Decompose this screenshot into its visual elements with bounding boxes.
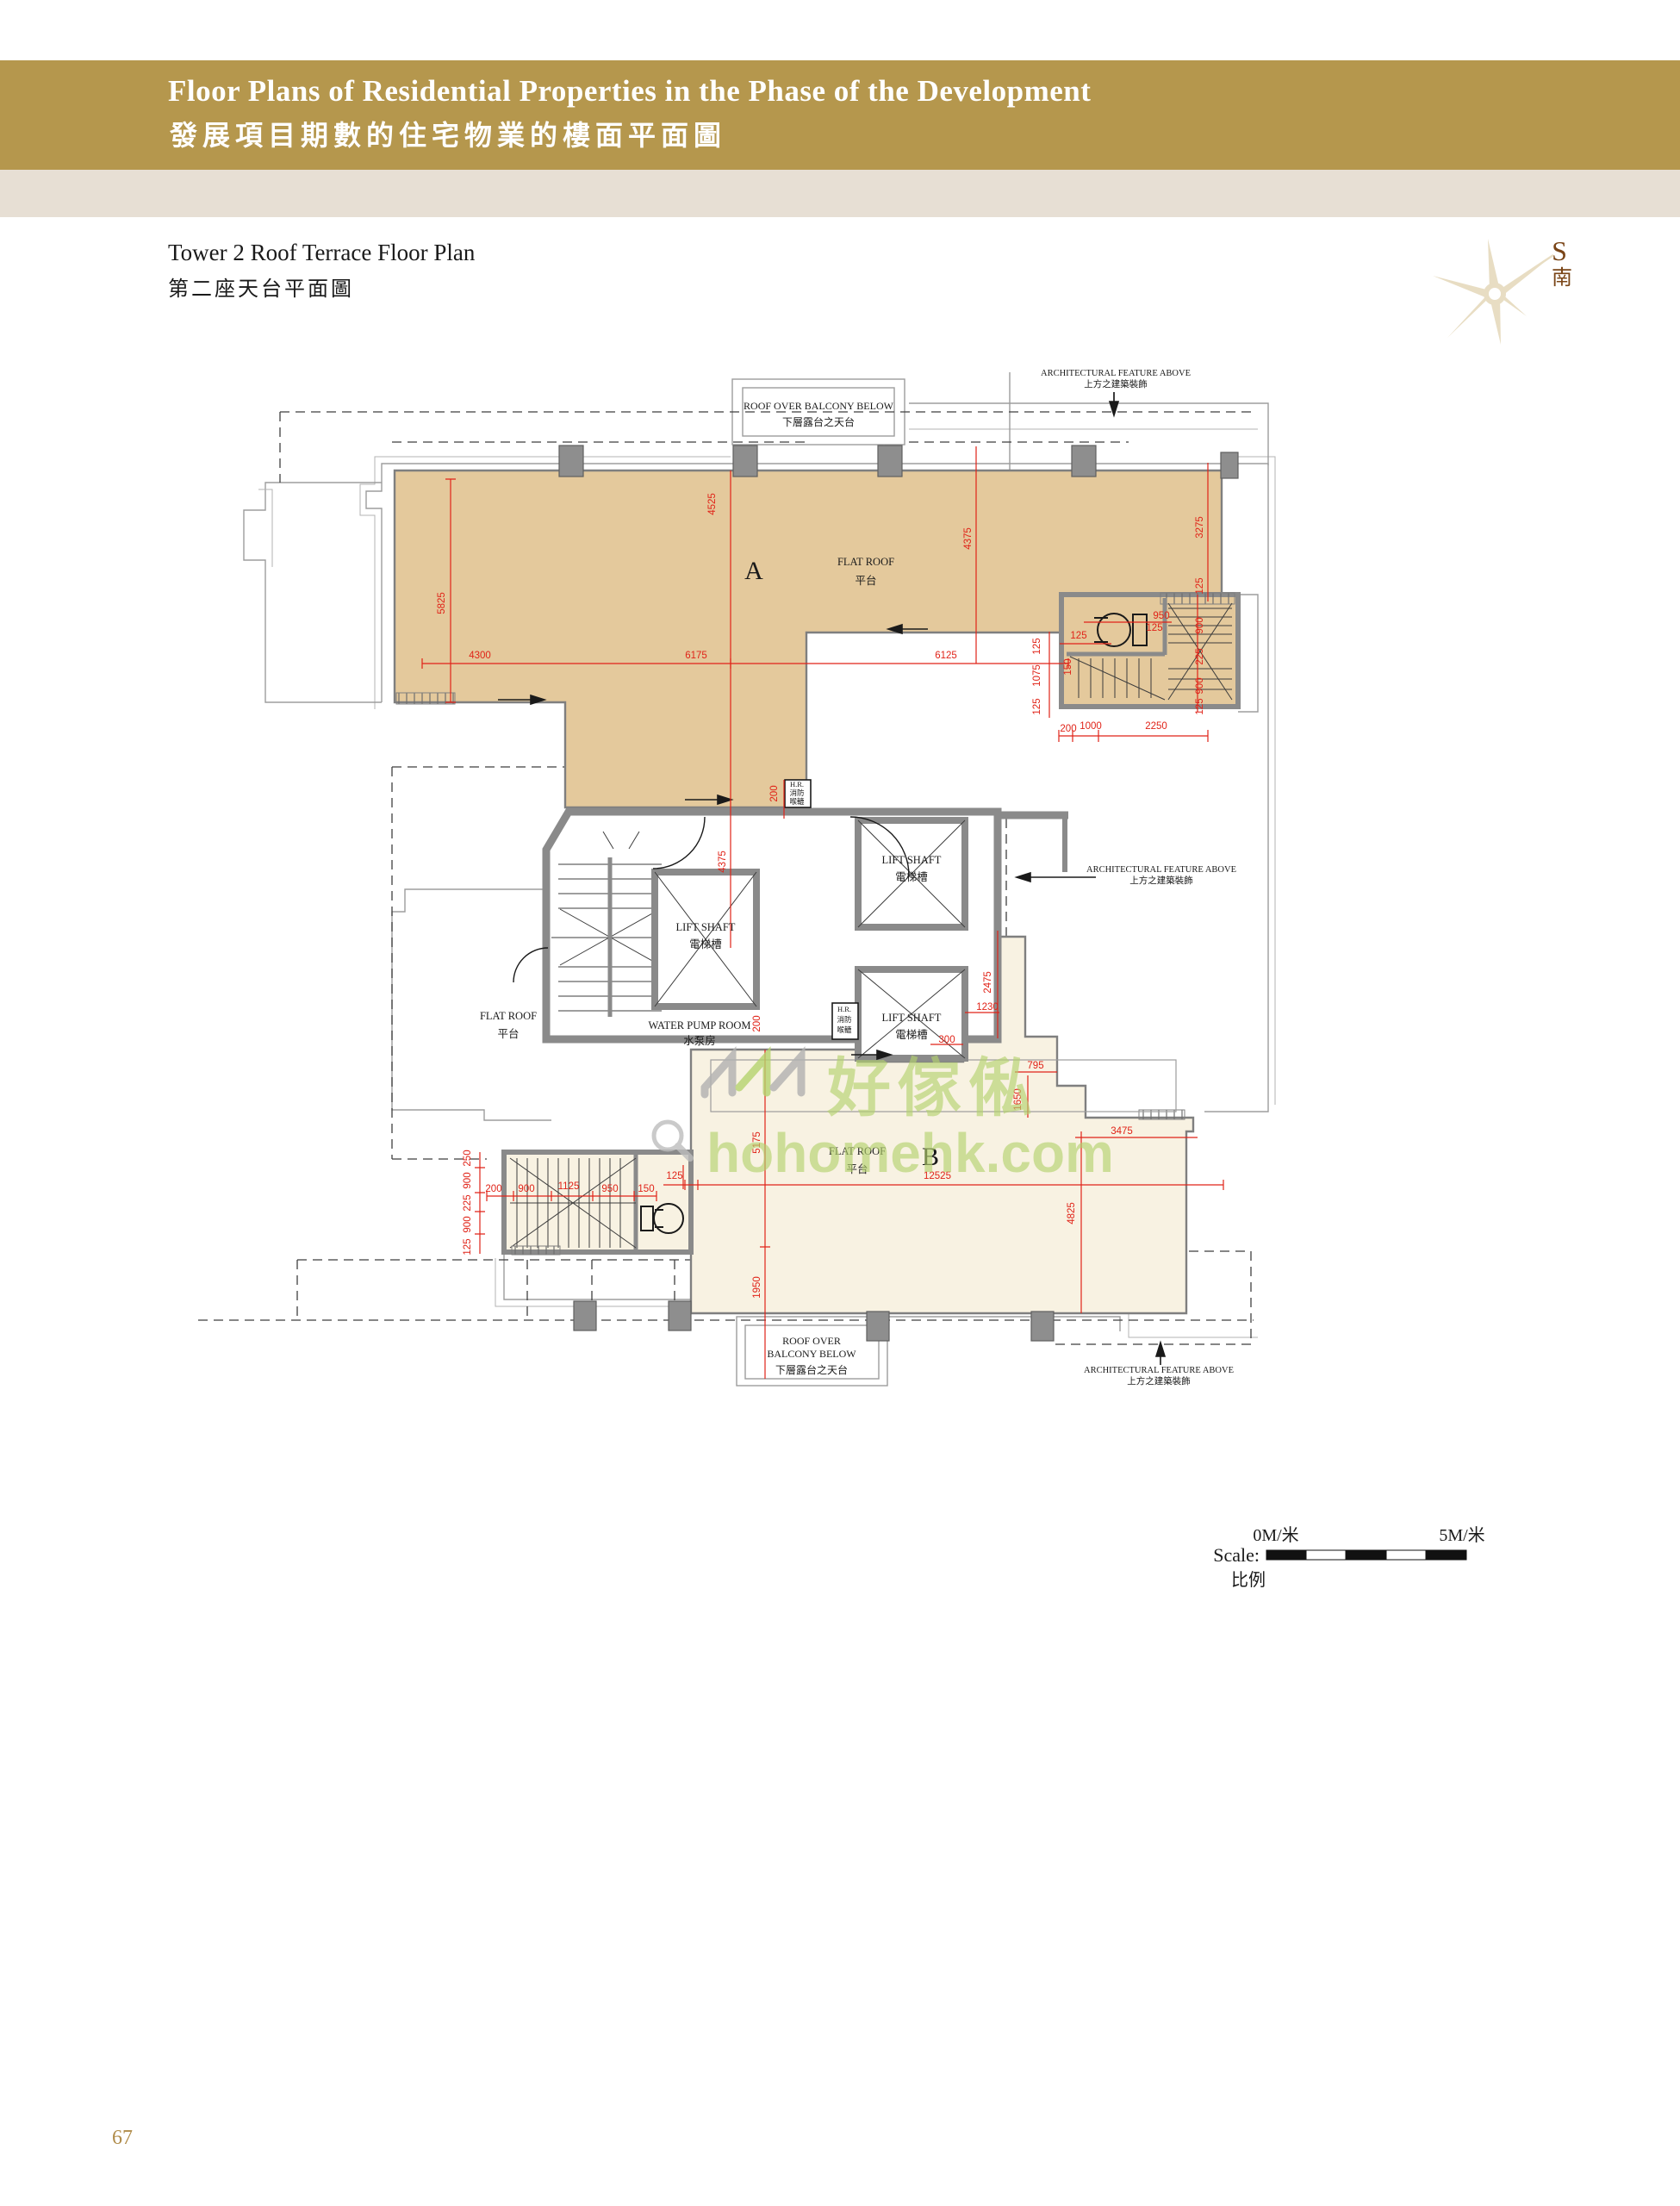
dimension-label: 150 xyxy=(1063,658,1073,675)
dimension-label: 5825 xyxy=(437,592,447,614)
plan-label: A xyxy=(744,557,763,585)
dimension-label: 200 xyxy=(485,1184,501,1194)
dimension-label: 225 xyxy=(463,1194,473,1211)
dimension-label: 6125 xyxy=(935,651,957,661)
dimension-label: 1230 xyxy=(976,1002,999,1013)
plan-label: 下層露台之天台 xyxy=(782,415,855,428)
dimension-label: 900 xyxy=(518,1184,534,1194)
scale-label: Scale: xyxy=(1213,1544,1260,1566)
dimension-label: 950 xyxy=(601,1184,618,1194)
plan-label: 水泵房 xyxy=(683,1034,716,1047)
roof-stair-block-right xyxy=(1061,593,1238,707)
dimension-label: 1950 xyxy=(752,1276,762,1299)
plan-label: ARCHITECTURAL FEATURE ABOVE xyxy=(1041,369,1191,378)
watermark-cn: 好傢俬 xyxy=(826,1052,1039,1124)
roof-stair-block-left xyxy=(504,1152,691,1255)
plan-label: 消防 xyxy=(789,788,805,797)
dimension-label: 4825 xyxy=(1067,1202,1077,1225)
plan-label: ARCHITECTURAL FEATURE ABOVE xyxy=(1086,865,1236,875)
dimension-label: 900 xyxy=(463,1216,473,1232)
plan-label: 喉轆 xyxy=(837,1025,852,1034)
compass-icon: S 南 xyxy=(1433,235,1572,345)
dimension-label: 125 xyxy=(1032,698,1042,714)
dimension-label: 3475 xyxy=(1111,1126,1133,1137)
dimension-label: 1000 xyxy=(1080,721,1102,732)
dimension-label: 125 xyxy=(1070,631,1086,641)
plan-label: 平台 xyxy=(855,574,876,587)
plan-label: 消防 xyxy=(837,1015,852,1024)
watermark-domain: hohomehk.com xyxy=(706,1122,1114,1184)
floor-plan: S 南 xyxy=(0,0,1680,2206)
dimension-label: 200 xyxy=(752,1015,762,1031)
dimension-label: 125 xyxy=(1195,577,1205,594)
compass-letter-cn: 南 xyxy=(1552,266,1572,290)
plan-label: 喉轆 xyxy=(789,797,805,806)
dimension-label: 125 xyxy=(1146,623,1162,633)
dimension-label: 125 xyxy=(1195,698,1205,714)
dimension-label: 2475 xyxy=(983,971,993,994)
scale-bar: 0M/米 5M/米 Scale: 比例 xyxy=(1213,1525,1484,1590)
scale-left-label: 0M/米 xyxy=(1253,1525,1298,1545)
dimension-label: 250 xyxy=(463,1150,473,1166)
plan-label: 電梯槽 xyxy=(895,1029,928,1041)
dimension-label: 4525 xyxy=(707,493,718,515)
plan-label: WATER PUMP ROOM xyxy=(648,1019,750,1031)
dimension-label: 900 xyxy=(1195,617,1205,633)
plan-label: 下層露台之天台 xyxy=(775,1363,848,1376)
plan-label: ARCHITECTURAL FEATURE ABOVE xyxy=(1084,1366,1234,1375)
compass-letter: S xyxy=(1552,235,1567,266)
dimension-label: 900 xyxy=(463,1172,473,1188)
plan-label: FLAT ROOF xyxy=(837,556,894,568)
plan-label: ROOF OVER xyxy=(782,1335,841,1347)
dimension-label: 900 xyxy=(1195,677,1205,694)
plan-label: H.R. xyxy=(790,780,804,788)
dimension-label: 125 xyxy=(1032,638,1042,654)
dimension-label: 950 xyxy=(1153,611,1169,621)
dimension-label: 4375 xyxy=(718,851,728,873)
page-number: 67 xyxy=(112,2127,133,2150)
plan-label: FLAT ROOF xyxy=(480,1010,537,1022)
dimension-label: 2250 xyxy=(1145,721,1167,732)
plan-label: 上方之建築裝飾 xyxy=(1127,1375,1191,1387)
dimension-label: 6175 xyxy=(685,651,707,661)
plan-label: 電梯槽 xyxy=(689,938,722,950)
scale-label-cn: 比例 xyxy=(1231,1570,1266,1590)
plan-label: 上方之建築裝飾 xyxy=(1129,875,1193,886)
dimension-label: 1075 xyxy=(1032,664,1042,687)
plan-label: LIFT SHAFT xyxy=(882,854,942,866)
dimension-label: 150 xyxy=(638,1184,654,1194)
brochure-page: Floor Plans of Residential Properties in… xyxy=(0,0,1680,2206)
plan-label: LIFT SHAFT xyxy=(676,921,736,933)
scale-right-label: 5M/米 xyxy=(1439,1525,1484,1545)
plan-label: BALCONY BELOW xyxy=(767,1348,856,1360)
dimension-label: 200 xyxy=(769,785,780,801)
dimension-label: 225 xyxy=(1195,648,1205,664)
plan-label: LIFT SHAFT xyxy=(882,1012,942,1024)
dimension-label: 4300 xyxy=(469,651,491,661)
dimension-label: 300 xyxy=(938,1035,955,1045)
plan-label: H.R. xyxy=(837,1005,851,1013)
dimension-label: 3275 xyxy=(1195,516,1205,539)
plan-label: 上方之建築裝飾 xyxy=(1084,378,1148,389)
dimension-label: 1125 xyxy=(558,1181,580,1192)
dimension-label: 125 xyxy=(463,1238,473,1255)
dimension-label: 200 xyxy=(1060,724,1076,734)
dimension-label: 4375 xyxy=(963,527,974,550)
core xyxy=(513,780,1068,1058)
plan-label: 平台 xyxy=(497,1027,519,1040)
plan-label: ROOF OVER BALCONY BELOW xyxy=(744,400,894,412)
plan-label: 電梯槽 xyxy=(895,871,928,883)
dimension-label: 125 xyxy=(666,1171,682,1181)
